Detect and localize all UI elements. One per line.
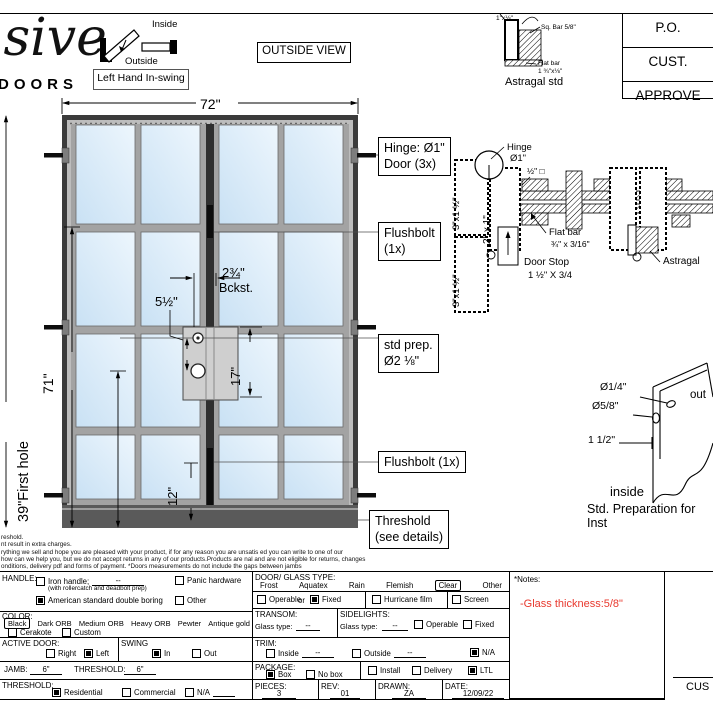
glass-clear[interactable]: Clear <box>435 580 462 591</box>
dim-first-hole: 39"First hole <box>16 441 32 522</box>
ltl-label: LTL <box>480 666 493 675</box>
approval-row-approve: APPROVE <box>623 82 713 115</box>
residential-checkbox[interactable] <box>52 688 61 697</box>
cerakote-checkbox[interactable] <box>8 628 17 637</box>
handle-panic-option: Panic hardware <box>175 576 241 585</box>
trim-outside-checkbox[interactable] <box>352 649 361 658</box>
flushbolt-top-callout: Flushbolt (1x) <box>378 222 441 261</box>
package-nobox-option: No box <box>306 670 343 679</box>
form-border <box>252 608 509 609</box>
transom-label: TRANSOM: <box>255 610 297 619</box>
notes-box: *Notes: -Glass thickness:5/8" <box>509 571 665 699</box>
dim-backset: 2¾" <box>222 265 245 280</box>
threshold-dim-label: THRESHOLD: <box>74 665 126 674</box>
form-border <box>318 679 319 699</box>
package-box-checkbox[interactable] <box>266 670 275 679</box>
disclaimer-line: reshold. <box>1 534 365 541</box>
handle-section-label: HANDLE: <box>2 574 37 583</box>
trim-label: TRIM: <box>255 639 277 648</box>
astragal-flatbar-label: Flat bar <box>538 60 560 67</box>
package-ltl-option: LTL <box>468 666 493 675</box>
swing-in-option: In <box>152 649 171 658</box>
dim-spacing: 5½" <box>155 294 178 309</box>
swing-out-option: Out <box>192 649 217 658</box>
form-border <box>447 591 448 608</box>
astragal-caption: Astragal std <box>505 76 563 88</box>
jamb-label: JAMB: <box>4 665 28 674</box>
trim-inside-value[interactable]: -- <box>302 648 334 658</box>
approval-row-po: P.O. <box>623 14 713 48</box>
sidelights-operable-option: Operable <box>414 620 458 629</box>
notes-label: *Notes: <box>514 575 664 584</box>
sidelights-operable-checkbox[interactable] <box>414 620 423 629</box>
threshold-detail-caption: Std. Preparation for Inst <box>587 502 713 530</box>
signature-label: CUS <box>686 681 709 693</box>
disclaimer-line: how can we help you, but we do not accep… <box>1 556 365 563</box>
active-door-label: ACTIVE DOOR: <box>2 639 59 648</box>
package-delivery-option: Delivery <box>412 666 452 675</box>
color-cerakote-option: Cerakote <box>8 628 52 637</box>
section-jamb2-label: 3"x1 ½" <box>451 274 462 307</box>
trim-inside-checkbox[interactable] <box>266 649 275 658</box>
active-door-left-option: Left <box>84 649 109 658</box>
trim-outside-option: Outside -- <box>352 648 426 658</box>
custom-color-checkbox[interactable] <box>62 628 71 637</box>
section-sqbar-label: ½" □ <box>527 166 545 176</box>
package-nobox-checkbox[interactable] <box>306 670 315 679</box>
threshold-residential-option: Residential <box>52 688 103 697</box>
handle-other-label: Other <box>187 596 207 605</box>
hurricane-film-option: Hurricane film <box>372 595 432 604</box>
form-border <box>0 637 509 638</box>
threshold-na-label: N/A <box>197 688 210 697</box>
package-install-option: Install <box>368 666 400 675</box>
threshold-callout-line1: Threshold <box>375 513 443 529</box>
swing-outside-label: Outside <box>125 56 158 67</box>
section-hinge-dia: Ø1" <box>510 153 526 164</box>
handle-other-checkbox[interactable] <box>175 596 184 605</box>
outside-view-label: OUTSIDE VIEW <box>257 42 351 63</box>
threshold-commercial-option: Commercial <box>122 688 176 697</box>
form-border <box>0 699 665 700</box>
panic-hardware-checkbox[interactable] <box>175 576 184 585</box>
american-boring-checkbox[interactable] <box>36 596 45 605</box>
residential-label: Residential <box>64 688 103 697</box>
glass-types-row: Frost Aquatex Rain Flemish Clear Other <box>260 580 502 591</box>
approval-row-cust: CUST. <box>623 48 713 82</box>
glass-or-label: or <box>298 596 305 605</box>
glass-other[interactable]: Other <box>482 581 502 590</box>
color-option-dark-orb[interactable]: Dark ORB <box>38 619 72 628</box>
astragal-dim-label: 1"x⅛" <box>496 15 513 22</box>
trim-outside-label: Outside <box>364 649 391 658</box>
form-border <box>360 661 361 679</box>
color-option-pewter[interactable]: Pewter <box>178 619 201 628</box>
dim-backset-label: Bckst. <box>219 281 253 295</box>
section-jamb1-label: 3"x1 ½" <box>451 197 462 230</box>
sidelights-label: SIDELIGHTS: <box>340 610 390 619</box>
sidelights-glass-label: Glass type: <box>340 622 378 631</box>
section-doorstop-size: 1 ½" X 3/4 <box>528 270 572 281</box>
form-border <box>118 637 119 661</box>
dim-17: 17" <box>228 367 243 386</box>
company-logo-script: usive <box>0 8 107 68</box>
install-checkbox[interactable] <box>368 666 377 675</box>
sidelights-fixed-label: Fixed <box>475 620 494 629</box>
std-prep-line1: std prep. <box>384 337 433 353</box>
transom-glass-value[interactable]: -- <box>296 621 320 631</box>
threshold-type-label: THRESHOLD: <box>2 681 54 690</box>
trim-outside-value[interactable]: -- <box>394 648 426 658</box>
screen-option: Screen <box>452 595 489 604</box>
section-doorstop-label: Door Stop <box>524 257 569 268</box>
form-border <box>0 611 252 612</box>
transom-glass-label: Glass type: <box>255 622 293 631</box>
hurricane-film-label: Hurricane film <box>384 595 432 604</box>
form-border <box>365 591 366 608</box>
commercial-checkbox[interactable] <box>122 688 131 697</box>
threshold-hole-big-label: Ø5/8" <box>592 400 619 412</box>
panic-hardware-label: Panic hardware <box>187 576 241 585</box>
sidelights-glass-value[interactable]: -- <box>382 621 408 631</box>
cerakote-label: Cerakote <box>20 628 52 637</box>
active-right-checkbox[interactable] <box>46 649 55 658</box>
swing-in-checkbox[interactable] <box>152 649 161 658</box>
color-custom-option: Custom <box>62 628 101 637</box>
threshold-na-checkbox[interactable] <box>185 688 194 697</box>
threshold-callout: Threshold (see details) <box>369 510 449 549</box>
delivery-label: Delivery <box>424 666 452 675</box>
commercial-label: Commercial <box>134 688 176 697</box>
color-option-heavy-orb[interactable]: Heavy ORB <box>131 619 171 628</box>
section-stile-label: 2" x 1" <box>482 215 493 244</box>
sidelights-operable-label: Operable <box>426 620 458 629</box>
swing-type-label: Left Hand In-swing <box>93 69 189 90</box>
disclaimer-line: rything we sell and hope you are pleased… <box>1 549 365 556</box>
swing-in-label: In <box>164 649 171 658</box>
astragal-sqbar-label: Sq. Bar 5/8" <box>541 24 576 31</box>
glass-operable-checkbox[interactable] <box>257 595 266 604</box>
iron-handle-note: (with rollercatch and deadbolt prep) <box>48 585 147 592</box>
glass-operable-option: Operable <box>257 595 301 604</box>
flushbolt-top-line1: Flushbolt <box>384 225 435 241</box>
screen-label: Screen <box>464 595 489 604</box>
jamb-value[interactable]: 6" <box>30 665 62 675</box>
notes-text: -Glass thickness:5/8" <box>520 598 664 610</box>
std-prep-line2: Ø2 ⅛" <box>384 353 433 369</box>
dim-width: 72" <box>200 96 221 112</box>
trim-inside-label: Inside <box>278 649 299 658</box>
glass-fixed-label: Fixed <box>322 595 341 604</box>
threshold-outside-label: out <box>690 389 706 401</box>
trim-na-option: N/A <box>470 648 495 657</box>
form-border <box>442 679 443 699</box>
package-nobox-label: No box <box>318 670 343 679</box>
flushbolt-top-line2: (1x) <box>384 241 435 257</box>
section-hinge-label: Hinge <box>507 142 532 153</box>
swing-inside-label: Inside <box>152 19 177 30</box>
handle-other-option: Other <box>175 596 207 605</box>
active-right-label: Right <box>58 649 76 658</box>
active-door-right-option: Right <box>46 649 76 658</box>
threshold-na-option: N/A <box>185 688 235 697</box>
form-border <box>252 571 253 699</box>
glass-flemish[interactable]: Flemish <box>386 581 413 590</box>
flushbolt-bottom-callout: Flushbolt (1x) <box>378 451 466 473</box>
rev-value[interactable]: 01 <box>330 689 360 699</box>
form-border <box>0 679 509 680</box>
active-left-checkbox[interactable] <box>84 649 93 658</box>
iron-handle-checkbox[interactable] <box>36 577 45 586</box>
form-border <box>337 608 338 637</box>
delivery-checkbox[interactable] <box>412 666 421 675</box>
pieces-value[interactable]: 3 <box>262 689 296 699</box>
std-prep-callout: std prep. Ø2 ⅛" <box>378 334 439 373</box>
section-flatbar-label: Flat bar <box>549 227 581 238</box>
section-flatbar-size: ¾" x 3/16" <box>551 239 590 249</box>
form-border <box>0 661 509 662</box>
threshold-na-value[interactable] <box>213 688 235 697</box>
hinge-callout-line2: Door (3x) <box>384 156 445 172</box>
disclaimer-line: onditions, delivery pdf and forms of pay… <box>1 563 365 570</box>
glass-operable-label: Operable <box>269 595 301 604</box>
astragal-flatbar-size: 1 ¾"x⅛" <box>538 68 562 75</box>
hinge-callout-line1: Hinge: Ø1" <box>384 140 445 156</box>
glass-fixed-option: Fixed <box>310 595 341 604</box>
trim-inside-option: Inside -- <box>266 648 334 658</box>
dim-71: 71" <box>40 373 56 394</box>
color-option-medium-orb[interactable]: Medium ORB <box>79 619 124 628</box>
color-option-antique-gold[interactable]: Antique gold <box>208 619 250 628</box>
glass-aquatex[interactable]: Aquatex <box>299 581 328 590</box>
threshold-hole-small-label: Ø1/4" <box>600 381 627 393</box>
trim-na-checkbox[interactable] <box>470 648 479 657</box>
signature-line <box>673 677 713 678</box>
threshold-callout-line2: (see details) <box>375 529 443 545</box>
date-value[interactable]: 12/09/22 <box>452 689 504 699</box>
door-spec-sheet: usive DOORS Inside Outside Left Hand In-… <box>0 0 713 713</box>
disclaimer-line: nt result in extra charges. <box>1 541 365 548</box>
drawn-value[interactable]: ZA <box>392 689 426 699</box>
package-box-label: Box <box>278 670 291 679</box>
swing-out-checkbox[interactable] <box>192 649 201 658</box>
screen-checkbox[interactable] <box>452 595 461 604</box>
package-box-option: Box <box>266 670 291 679</box>
install-label: Install <box>380 666 400 675</box>
active-left-label: Left <box>96 649 109 658</box>
disclaimer-text: reshold. nt result in extra charges. ryt… <box>1 534 365 570</box>
ltl-checkbox[interactable] <box>468 666 477 675</box>
hinge-callout: Hinge: Ø1" Door (3x) <box>378 137 451 176</box>
threshold-offset-label: 1 1/2" <box>588 434 615 446</box>
dim-12: 12" <box>165 487 180 506</box>
approval-table: P.O. CUST. APPROVE <box>622 13 713 99</box>
sidelights-fixed-checkbox[interactable] <box>463 620 472 629</box>
section-astragal-label: Astragal <box>663 256 700 267</box>
swing-out-label: Out <box>204 649 217 658</box>
form-border <box>252 591 509 592</box>
trim-na-label: N/A <box>482 648 495 657</box>
handle-american-option: American standard double boring <box>36 596 163 605</box>
glass-rain[interactable]: Rain <box>349 581 365 590</box>
form-border <box>375 679 376 699</box>
american-boring-label: American standard double boring <box>48 596 163 605</box>
swing-section-label: SWING <box>121 639 148 648</box>
glass-fixed-checkbox[interactable] <box>310 595 319 604</box>
sidelights-fixed-option: Fixed <box>463 620 494 629</box>
threshold-inside-label: inside <box>610 484 644 499</box>
threshold-dim-value[interactable]: 6" <box>124 665 156 675</box>
hurricane-film-checkbox[interactable] <box>372 595 381 604</box>
custom-color-label: Custom <box>74 628 101 637</box>
glass-frost[interactable]: Frost <box>260 581 278 590</box>
